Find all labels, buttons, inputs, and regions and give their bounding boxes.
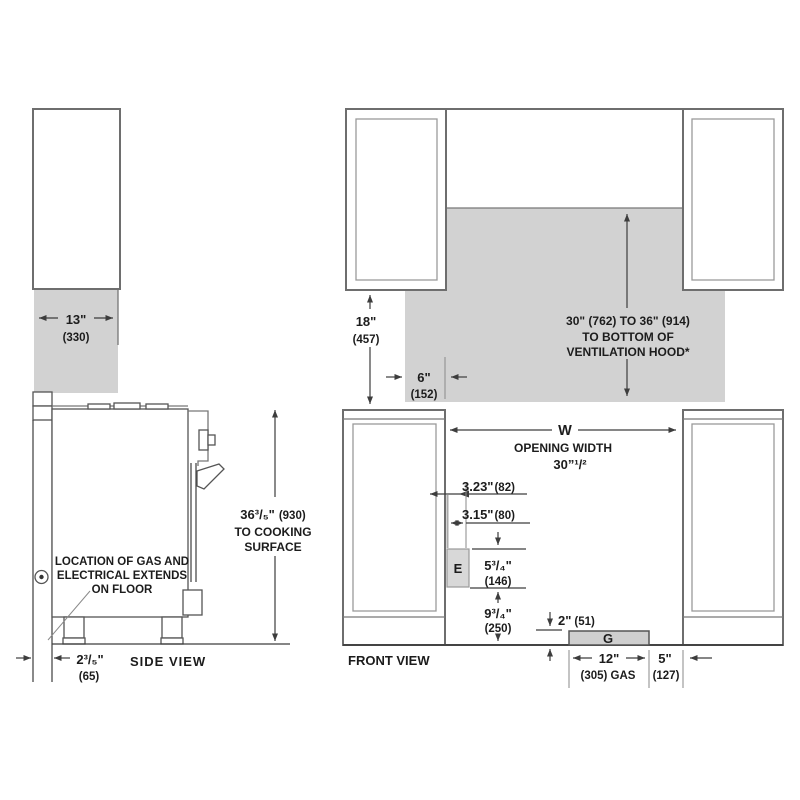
lower-cabinet-left (343, 410, 445, 645)
range-leg-front (162, 617, 182, 638)
upper-cabinet-left (346, 109, 446, 290)
dim-label-primary: 13" (66, 312, 87, 327)
dim-label-metric: (330) (63, 332, 90, 344)
electrical-box: E (447, 549, 469, 587)
oven-drawer-face (183, 590, 202, 615)
hood-label-line2: TO BOTTOM OF (582, 330, 674, 344)
range-leg-rear (64, 617, 84, 638)
gas-symbol: G (603, 631, 613, 646)
dim-label-line2: TO COOKING (234, 525, 311, 539)
dim-label: 3.15"(80) (462, 507, 515, 522)
hood-label-line3: VENTILATION HOOD* (566, 345, 689, 359)
dim-label-primary: 5³/₄" (484, 558, 512, 573)
dim-label-primary: 5" (658, 651, 671, 666)
dim-metric: (930) (279, 510, 306, 522)
range-foot-front (161, 638, 183, 644)
lower-cabinet-right-outer (683, 410, 783, 645)
dim-label-line3: SURFACE (244, 540, 301, 554)
dim-metric: (51) (574, 616, 595, 628)
gas-connection-dot (39, 575, 43, 579)
dim-label: 2"(51) (558, 613, 595, 628)
installation-diagram-page: 13" (330) (0, 0, 800, 800)
grate (88, 404, 110, 409)
dim-metric: (80) (494, 510, 515, 522)
dim-label-metric: (146) (485, 576, 512, 588)
control-knob-icon (199, 430, 208, 450)
hood-clearance-shade (405, 208, 725, 402)
lower-cabinet-right (683, 410, 783, 645)
dim-label-metric: (152) (411, 389, 438, 401)
dim-metric: (82) (494, 482, 515, 494)
opening-symbol: W (558, 423, 572, 439)
opening-label: OPENING WIDTH (514, 441, 612, 455)
upper-cabinet-left-outer (346, 109, 446, 290)
lower-cabinet-left-outer (343, 410, 445, 645)
dim-label-metric: (457) (353, 334, 380, 346)
dim-label-primary: 36³/₅"(930) (240, 507, 306, 522)
grate (146, 404, 168, 409)
tall-cabinet (33, 109, 120, 289)
dim-label-primary: 9³/₄" (484, 606, 512, 621)
cooktop-grates (88, 403, 168, 409)
dim-inches: 3.23" (462, 479, 493, 494)
dim-label-primary: 6" (417, 370, 430, 385)
dim-label-metric: (250) (485, 623, 512, 635)
dim-label-primary: 18" (356, 314, 377, 329)
dim-label-metric: (65) (79, 671, 100, 683)
range-foot-rear (63, 638, 85, 644)
control-knob-cap (208, 435, 215, 445)
dim-label: 3.23"(82) (462, 479, 515, 494)
dim-label-metric: (305) GAS (581, 670, 636, 682)
dim-inches: 2" (558, 613, 571, 628)
upper-cabinet-right-outer (683, 109, 783, 290)
dim-label-primary: 2³/₅" (76, 652, 103, 667)
wall-block-bottom (33, 406, 52, 420)
note-line2: ELECTRICAL EXTENDS (57, 570, 187, 582)
dim-label-metric: (127) (653, 670, 680, 682)
grate (114, 403, 140, 409)
side-view-title: SIDE VIEW (130, 654, 206, 669)
dim-label-primary: 12" (599, 651, 620, 666)
note-line1: LOCATION OF GAS AND (55, 556, 189, 568)
dim-inches: 3.15" (462, 507, 493, 522)
hood-label-line1: 30" (762) TO 36" (914) (566, 314, 690, 328)
dim-inches: 36³/₅" (240, 507, 275, 522)
range-installation-diagram: 13" (330) (0, 0, 800, 800)
front-view-title: FRONT VIEW (348, 653, 430, 668)
upper-cabinet-right (683, 109, 783, 290)
opening-value: 30”¹/² (553, 457, 587, 472)
note-line3: ON FLOOR (92, 584, 153, 596)
electrical-symbol: E (454, 561, 463, 576)
gas-connection-icon (35, 571, 48, 584)
wall-block-top (33, 392, 52, 406)
gas-box: G (569, 631, 649, 646)
